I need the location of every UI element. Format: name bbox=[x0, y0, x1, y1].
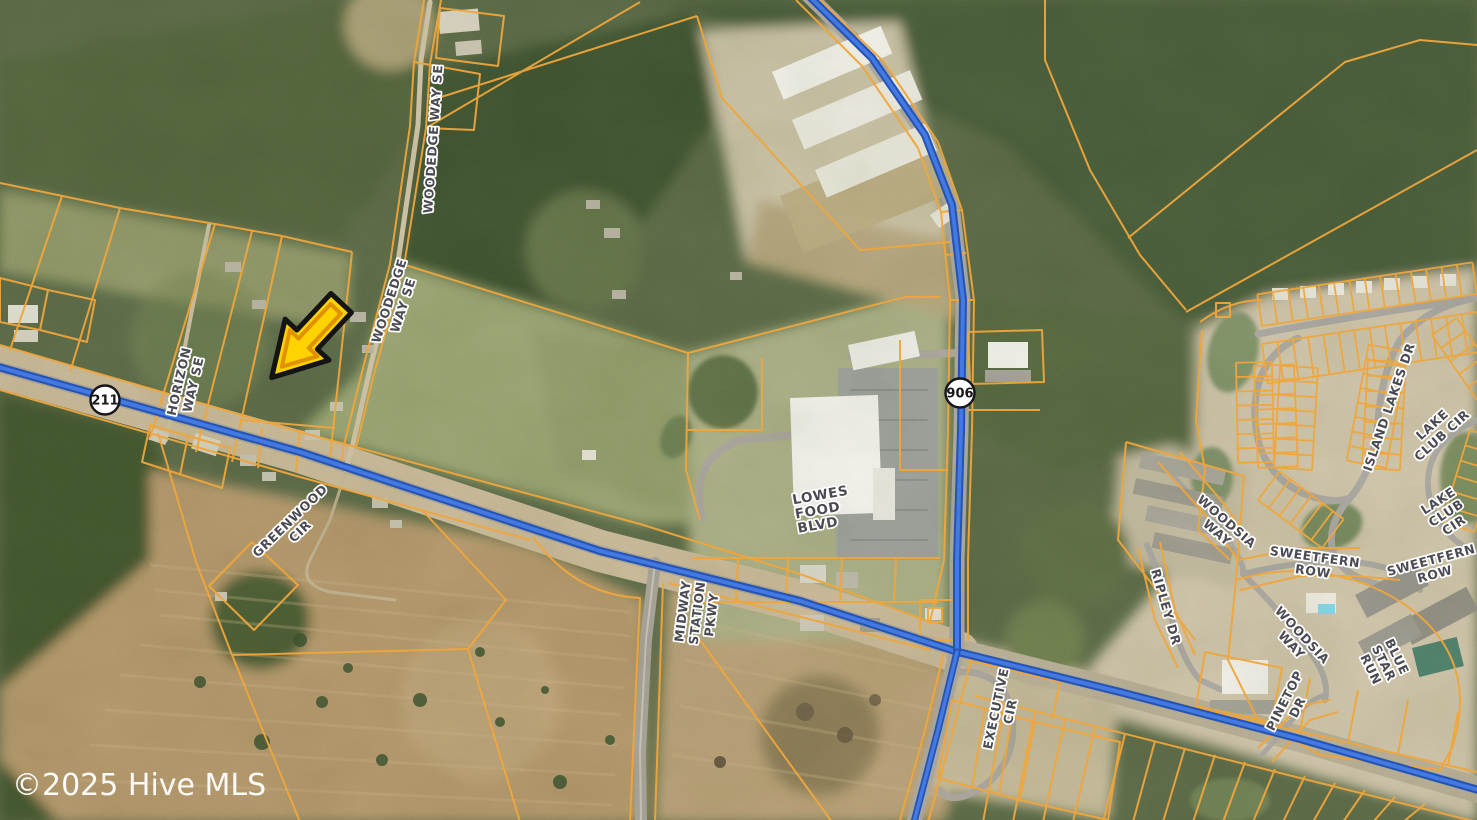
shield-211: 211 bbox=[91, 386, 120, 415]
shield-906: 906 bbox=[946, 379, 975, 408]
svg-text:906: 906 bbox=[946, 387, 973, 402]
svg-text:211: 211 bbox=[91, 394, 118, 409]
attribution-watermark: ©2025 Hive MLS bbox=[12, 768, 266, 803]
map-canvas[interactable]: 211906 WOODEDGE WAY SEWOODEDGEWAY SEHORI… bbox=[0, 0, 1477, 820]
